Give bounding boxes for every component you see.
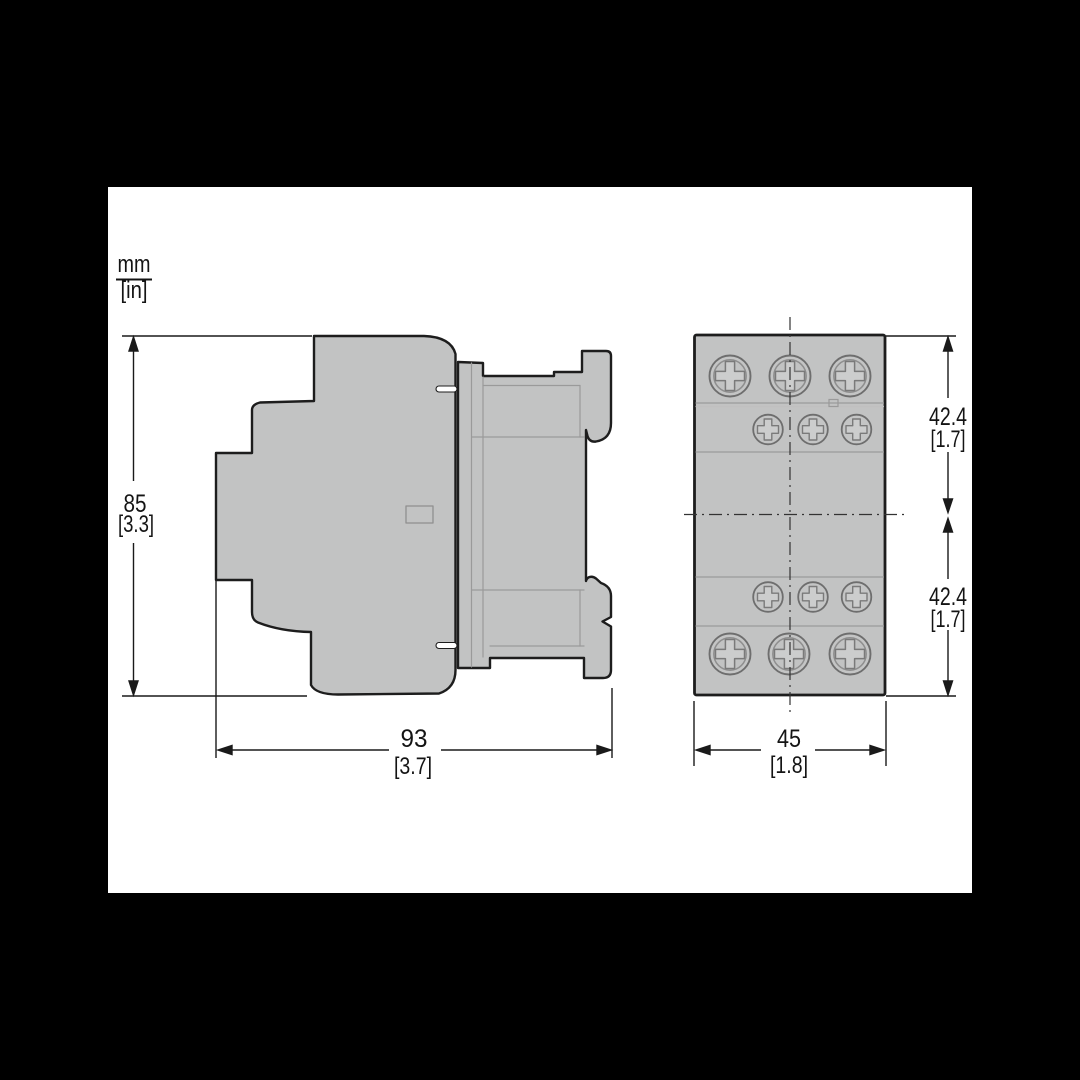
auxiliary-terminal-screw — [842, 415, 872, 445]
auxiliary-terminal-screw — [798, 415, 828, 445]
units-label: mm [in] — [116, 251, 152, 304]
dim-side-height-in: [3.3] — [118, 511, 154, 538]
drawing-sheet: mm [in] — [108, 187, 972, 893]
dim-front-lower-in: [1.7] — [931, 606, 966, 633]
dim-front-upper: 42.4 [1.7] — [929, 337, 967, 513]
dim-front-width-in: [1.8] — [770, 752, 808, 779]
auxiliary-terminal-screw — [753, 582, 783, 612]
dim-front-width: 45 [1.8] — [696, 725, 884, 779]
dim-side-width: 93 [3.7] — [218, 725, 611, 780]
side-view-slit-bottom — [436, 643, 457, 649]
power-terminal-screw — [710, 634, 751, 675]
units-in-label: [in] — [121, 277, 148, 304]
power-terminal-screw — [769, 634, 810, 675]
side-view-slit-top — [436, 386, 457, 392]
side-view-rear-body — [458, 351, 611, 678]
power-terminal-screw — [830, 356, 871, 397]
image-canvas: mm [in] — [0, 0, 1080, 1080]
side-view-tab — [406, 506, 433, 523]
dim-side-width-in: [3.7] — [394, 753, 432, 780]
units-mm-label: mm — [118, 251, 151, 278]
auxiliary-terminal-screw — [753, 415, 783, 445]
power-terminal-screw — [710, 356, 751, 397]
dim-front-width-mm: 45 — [777, 725, 801, 753]
dim-side-height: 85 [3.3] — [118, 337, 154, 695]
dim-side-width-mm: 93 — [401, 725, 428, 753]
auxiliary-terminal-screw — [798, 582, 828, 612]
dim-front-upper-in: [1.7] — [931, 426, 966, 453]
auxiliary-terminal-screw — [842, 582, 872, 612]
dimension-drawing: mm [in] — [108, 187, 972, 893]
power-terminal-screw — [830, 634, 871, 675]
dim-front-lower: 42.4 [1.7] — [929, 519, 967, 696]
side-view — [216, 336, 611, 695]
